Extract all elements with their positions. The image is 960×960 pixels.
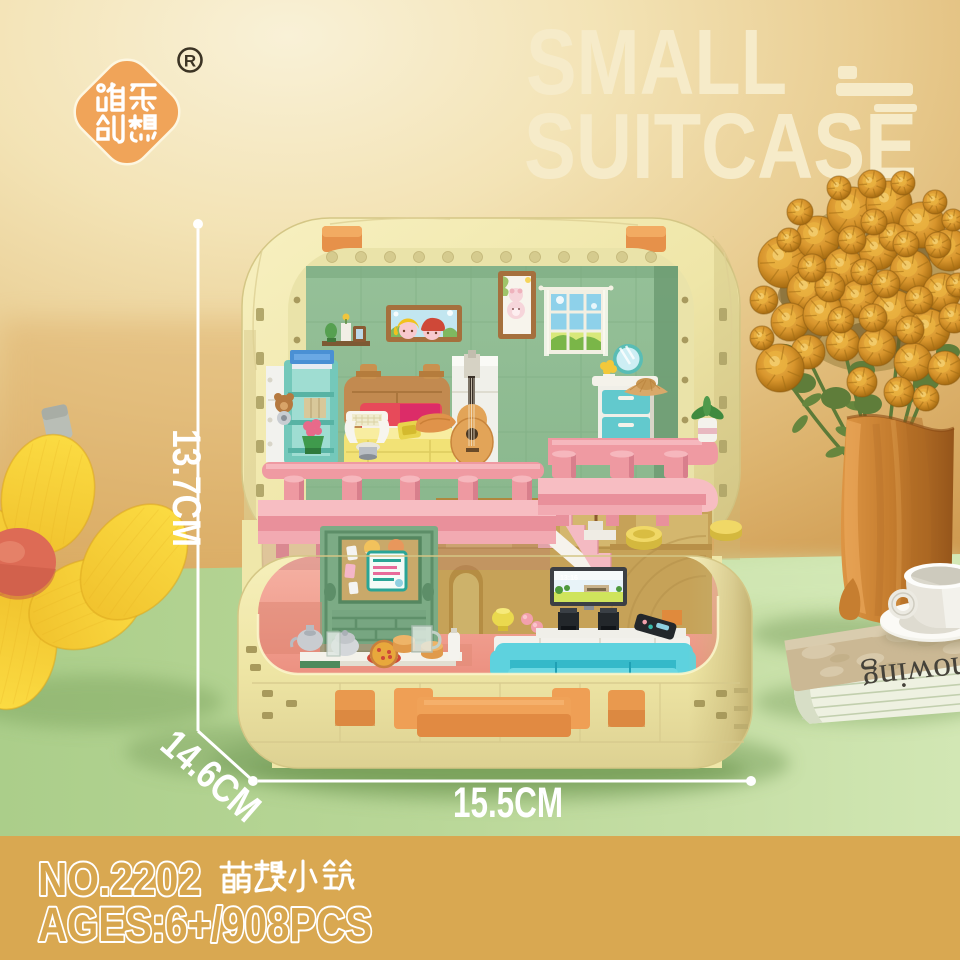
svg-text:R: R [184,52,196,71]
svg-text:13:16: 13:16 [560,575,578,582]
svg-text:NO.2202: NO.2202 [38,853,201,905]
svg-text:13.7CM: 13.7CM [164,429,208,547]
svg-text:AGES:6+/908PCS: AGES:6+/908PCS [38,899,372,952]
svg-text:15.5CM: 15.5CM [453,779,563,827]
